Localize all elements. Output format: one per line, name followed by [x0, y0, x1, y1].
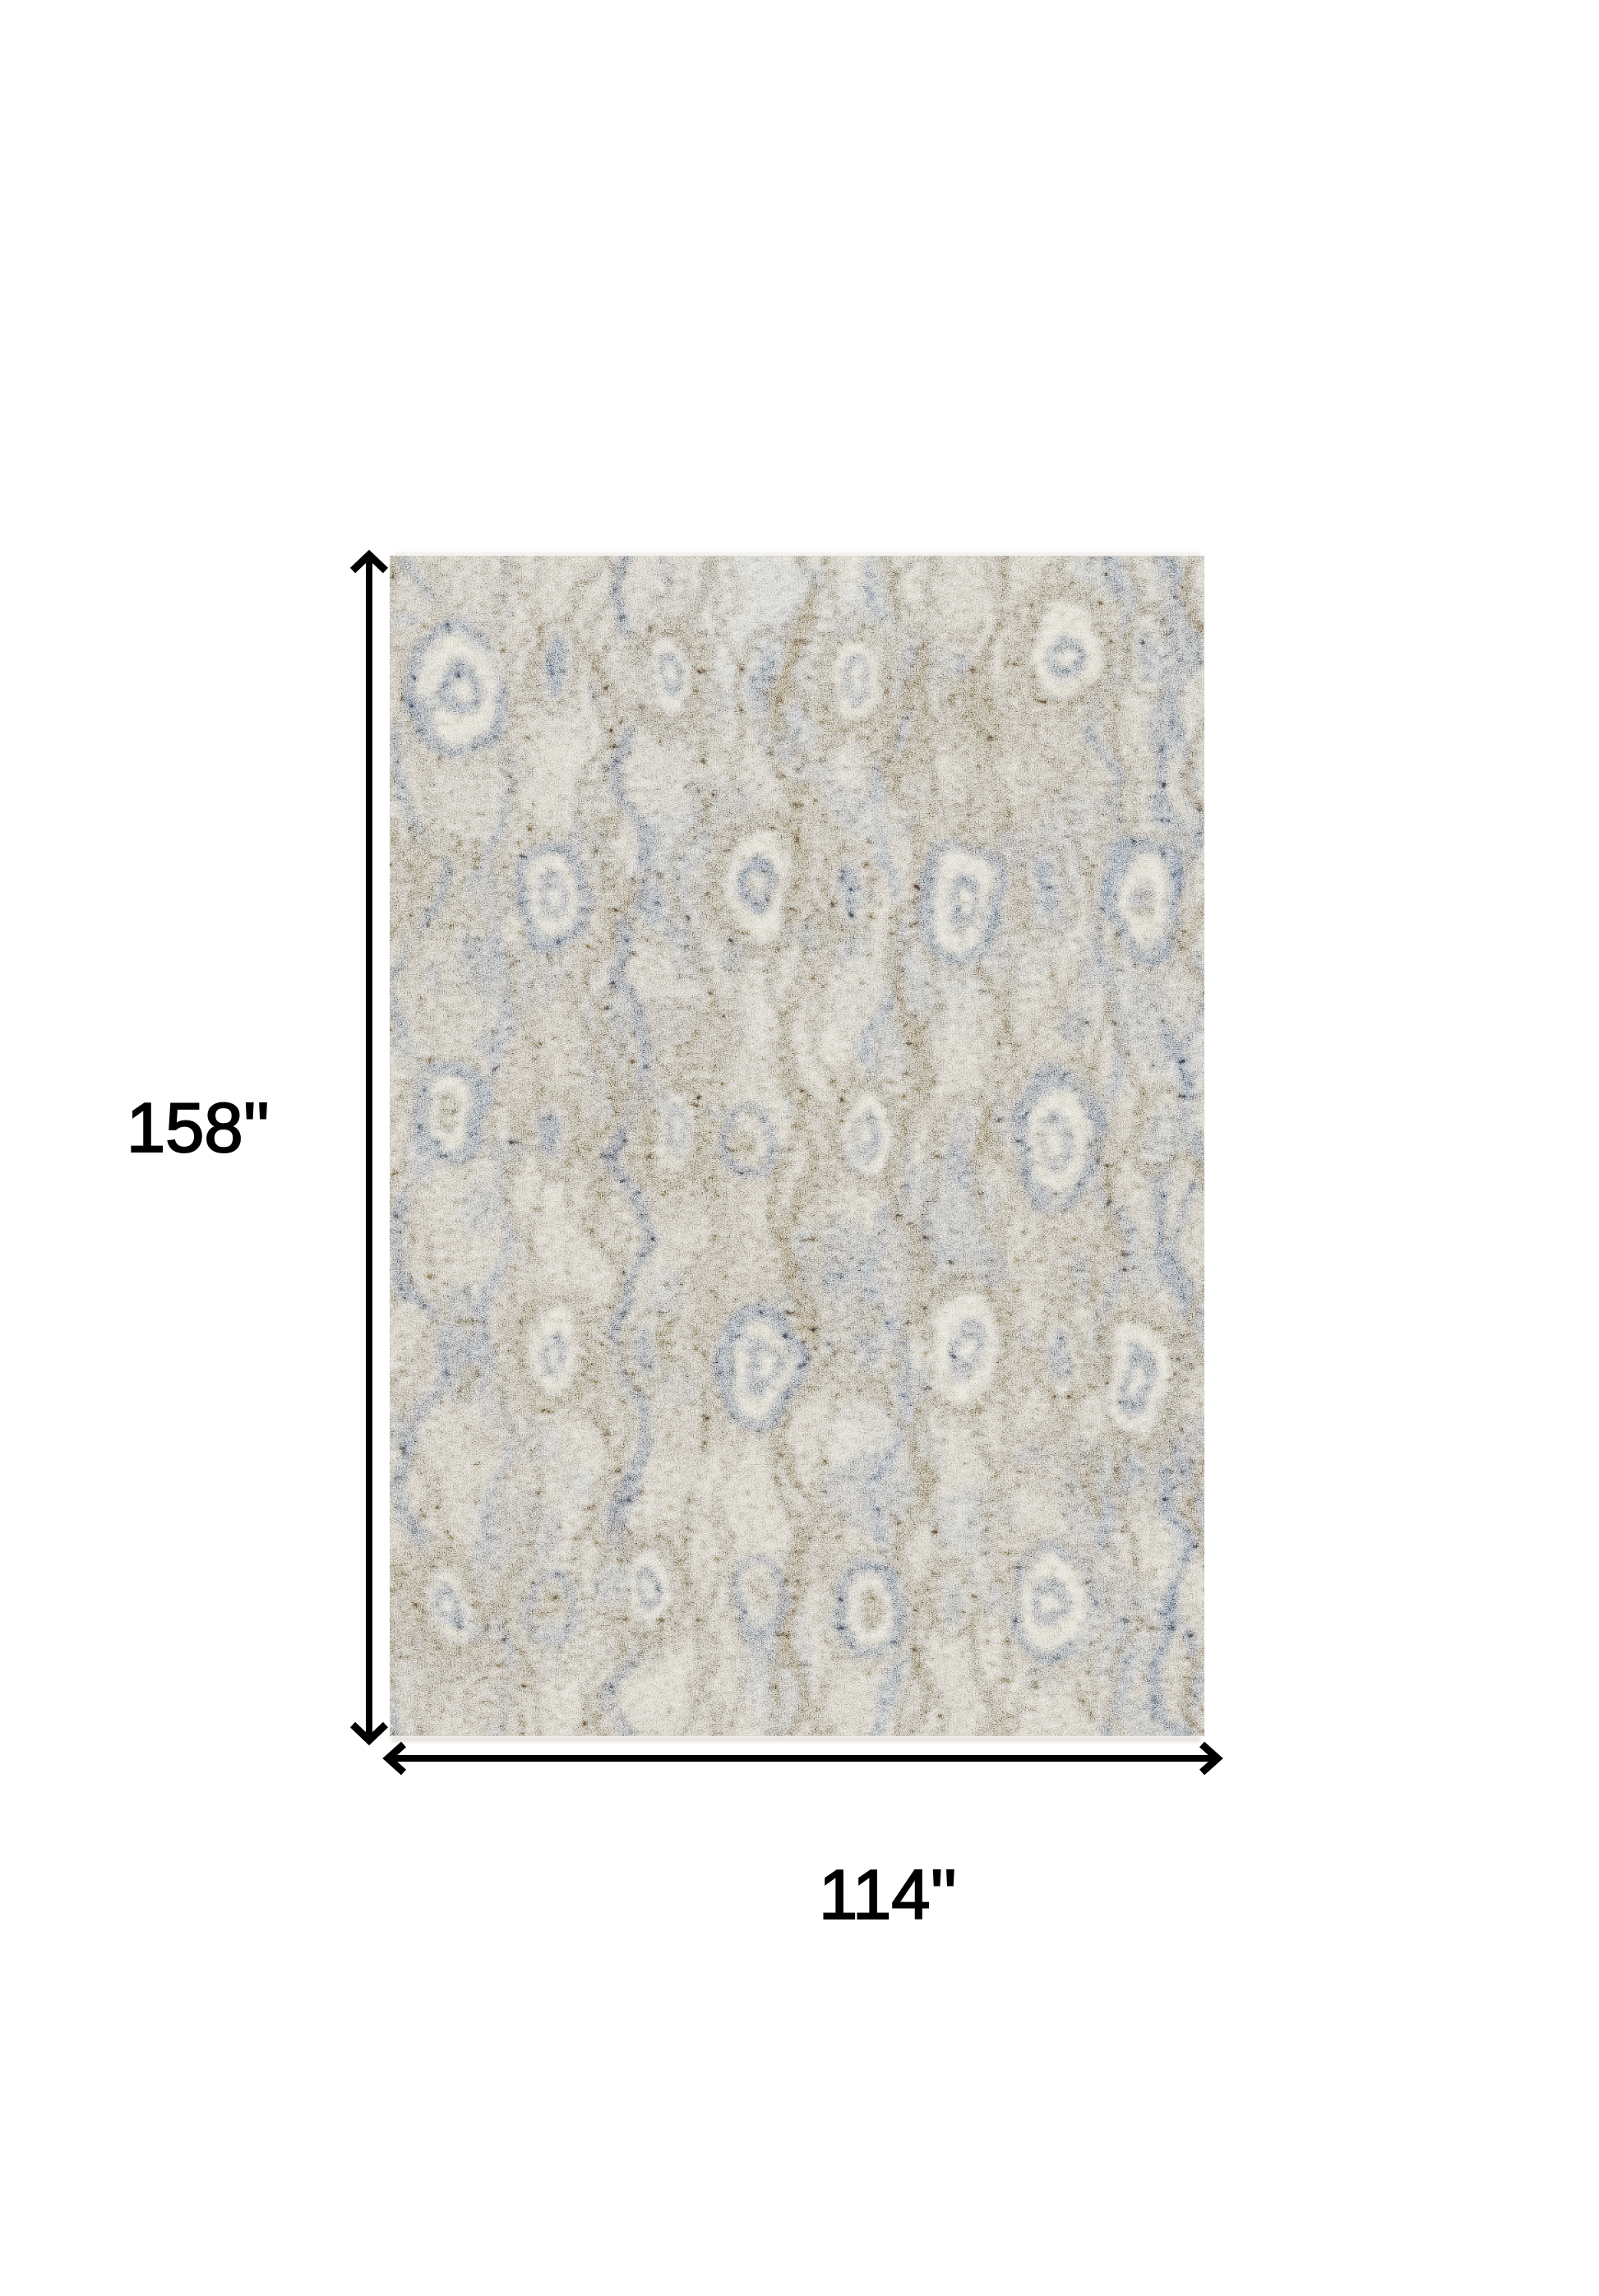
svg-text:114'': 114'' — [819, 1856, 957, 1934]
svg-text:158'': 158'' — [127, 1089, 270, 1167]
